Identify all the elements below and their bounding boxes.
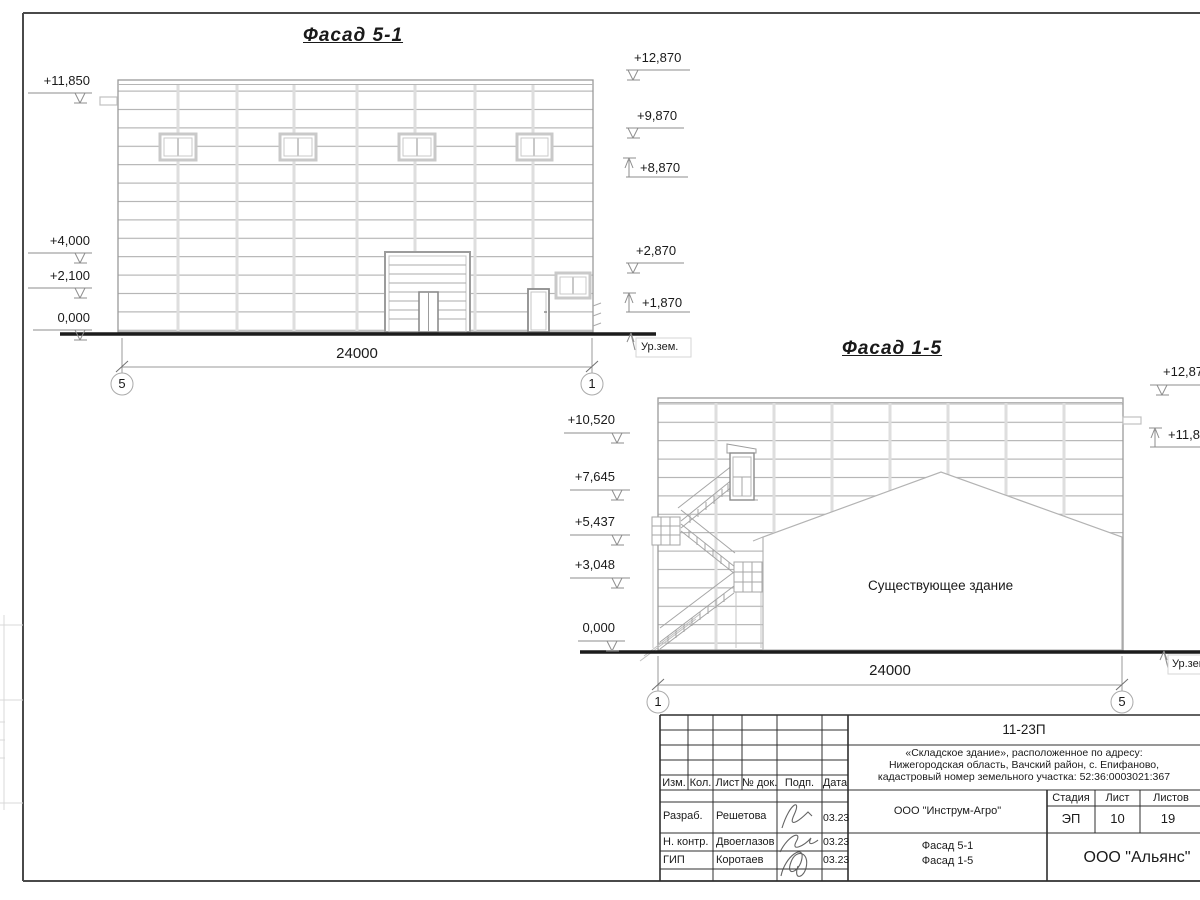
axis-bubble-label: 5 [1110,695,1134,710]
col-header-data: Дата [822,777,848,790]
axis-bubble-label: 1 [646,695,670,710]
sheet-label: Лист [1095,792,1140,805]
drawing-title-line1: Фасад 5-1 [848,840,1047,853]
facade-5-1-building [100,80,601,332]
elevation-mark-label: 0,000 [28,311,90,326]
elevation-mark-label: +2,100 [28,269,90,284]
elevation-mark-label: +12,870 [634,51,681,66]
signatures [780,805,818,877]
elevation-mark-label: +2,870 [636,244,676,259]
entrance-door [528,289,549,332]
project-address-line1: «Складское здание», расположенное по адр… [853,747,1195,759]
doc-number: 11-23П [848,722,1200,738]
elevation-marks-left-5-1 [28,93,92,340]
elevation-marks-right-5-1 [623,70,690,312]
elevation-mark-label: 0,000 [574,621,615,636]
small-window [556,273,590,298]
stage-value: ЭП [1047,812,1095,827]
row2-date: 03.23 [823,836,849,848]
left-edge-stub-table [0,615,23,810]
project-address-line3: кадастровый номер земельного участка: 52… [853,771,1195,783]
col-header-izm: Изм. [660,777,688,790]
sheet-value: 10 [1095,812,1140,827]
col-header-doc: № док. [742,777,777,790]
sheets-value: 19 [1140,812,1196,827]
drawing-title-line2: Фасад 1-5 [848,855,1047,868]
project-address-line2: Нижегородская область, Вачский район, с.… [853,759,1195,771]
row3-role: ГИП [663,854,685,867]
col-header-podp: Подп. [777,777,822,790]
stage-label: Стадия [1047,792,1095,805]
row1-name: Решетова [716,810,766,823]
row1-date: 03.23 [823,812,849,824]
ground-level-label: Ур.зем [1172,658,1200,671]
org-name: ООО "Инструм-Агро" [848,805,1047,818]
elevation-mark-label: +11,850 [28,74,90,89]
facade-1-5-title: Фасад 1-5 [842,338,942,360]
row1-role: Разраб. [663,810,703,823]
elevation-mark-label: +5,437 [569,515,615,530]
dimension-label: 24000 [840,662,940,679]
elevation-mark-label: +8,870 [640,161,680,176]
elevation-mark-label: +10,520 [563,413,615,428]
elevation-mark-label: +7,645 [569,470,615,485]
row2-name: Двоеглазов [716,836,774,849]
elevation-mark-label: +3,048 [569,558,615,573]
facade-5-1-title: Фасад 5-1 [303,25,403,47]
gate [385,252,470,332]
ground-level-label: Ур.зем. [641,341,678,354]
elevation-mark-label: +12,870 [1163,365,1200,380]
company-name: ООО "Альянс" [1047,849,1200,867]
elevation-marks-left-1-5 [564,433,630,651]
drawing-sheet: Фасад 5-1 +11,850 +4,000 +2,100 0,000 +1… [0,0,1200,900]
sheets-label: Листов [1140,792,1200,805]
existing-building-label: Существующее здание [868,578,1013,594]
elevation-mark-label: +11,850 [1168,428,1200,443]
col-header-kol: Кол. [688,777,713,790]
elevation-mark-label: +9,870 [637,109,677,124]
axis-bubble-label: 1 [580,377,604,392]
elevation-mark-label: +1,870 [642,296,682,311]
axis-bubble-label: 5 [110,377,134,392]
elevation-mark-label: +4,000 [28,234,90,249]
row3-date: 03.23 [823,854,849,866]
row3-name: Коротаев [716,854,764,867]
facade-1-5-building [640,398,1141,661]
dimension-label: 24000 [307,345,407,362]
row2-role: Н. контр. [663,836,708,849]
col-header-list: Лист [713,777,742,790]
